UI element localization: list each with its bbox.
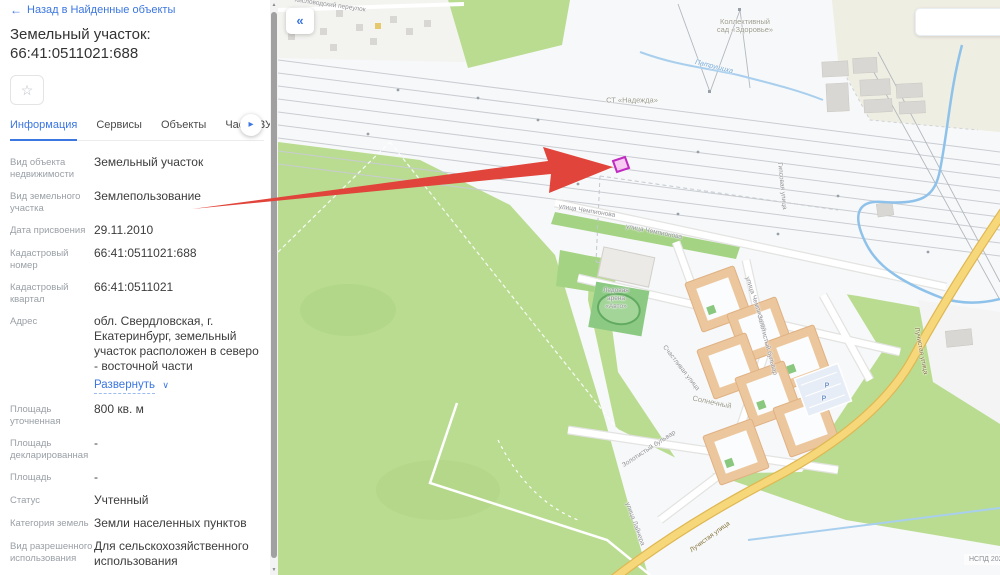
fields-list: Вид объекта недвижимости Земельный участ… [10,155,264,575]
field-row: Вид объекта недвижимости Земельный участ… [10,155,264,181]
field-value: Земли населенных пунктов [94,516,264,531]
map-canvas[interactable] [278,0,1000,575]
field-label: Статус [10,493,94,508]
field-value: Для сельскохозяйственного использования [94,539,264,569]
field-row: Площадь - [10,470,264,485]
field-row: Дата присвоения 29.11.2010 [10,223,264,238]
address-text: обл. Свердловская, г. Екатеринбург, земе… [94,314,259,373]
object-info-panel: ← Назад в Найденные объекты Земельный уч… [0,0,270,575]
field-row: Площадь уточненная 800 кв. м [10,402,264,428]
field-row-address: Адрес обл. Свердловская, г. Екатеринбург… [10,314,264,394]
field-value: - [94,436,264,462]
tab-bar: Информация Сервисы Объекты Части ЗУ Сост… [10,119,264,141]
scrollbar-up-icon[interactable]: ▲ [270,2,278,8]
collapse-panel-button[interactable]: « [286,8,314,34]
field-value: 800 кв. м [94,402,264,428]
field-row: Вид разрешенного использования Для сельс… [10,539,264,569]
scrollbar-thumb[interactable] [271,12,277,558]
field-row: Статус Учтенный [10,493,264,508]
field-row: Вид земельного участка Землепользование [10,189,264,215]
panel-scrollbar[interactable]: ▲ ▼ [270,0,278,575]
cadastral-map-app: ← Назад в Найденные объекты Земельный уч… [0,0,1000,575]
copyright-label: НСПД 202 [964,554,1000,565]
favorite-button[interactable]: ☆ [10,75,44,105]
field-label: Кадастровый квартал [10,280,94,306]
field-label: Площадь декларированная [10,436,94,462]
field-value: Учтенный [94,493,264,508]
field-label: Вид разрешенного использования [10,539,94,569]
back-label: Назад в Найденные объекты [27,4,175,16]
field-value: Земельный участок [94,155,264,181]
star-icon: ☆ [21,82,34,98]
field-value: 29.11.2010 [94,223,264,238]
field-label: Кадастровый номер [10,246,94,272]
field-row: Кадастровый квартал 66:41:0511021 [10,280,264,306]
field-row: Кадастровый номер 66:41:0511021:688 [10,246,264,272]
page-title: Земельный участок: 66:41:0511021:688 [10,25,264,63]
field-value: обл. Свердловская, г. Екатеринбург, земе… [94,314,264,394]
double-chevron-left-icon: « [296,13,303,28]
stadium [588,282,649,337]
tab-information[interactable]: Информация [10,119,77,131]
field-label: Адрес [10,314,94,394]
back-arrow-icon: ← [10,3,22,17]
field-label: Категория земель [10,516,94,531]
field-label: Площадь уточненная [10,402,94,428]
field-label: Вид земельного участка [10,189,94,215]
chevron-down-icon: ∨ [162,380,169,390]
field-row: Категория земель Земли населенных пункто… [10,516,264,531]
field-value: 66:41:0511021 [94,280,264,306]
field-label: Вид объекта недвижимости [10,155,94,181]
tab-services[interactable]: Сервисы [96,119,142,131]
back-link[interactable]: ← Назад в Найденные объекты [10,3,264,17]
tab-objects[interactable]: Объекты [161,119,206,131]
parcel-highlight[interactable] [613,157,629,172]
field-value: 66:41:0511021:688 [94,246,264,272]
field-label: Площадь [10,470,94,485]
field-row: Площадь декларированная - [10,436,264,462]
chevron-right-icon: ▸ [248,119,253,130]
field-label: Дата присвоения [10,223,94,238]
map-control-box[interactable] [915,8,1000,36]
map-viewport[interactable]: Кисловодский переулок Коллективный сад «… [278,0,1000,575]
expand-address-link[interactable]: Развернуть [94,378,155,394]
tabs-scroll-button[interactable]: ▸ [240,114,262,136]
field-value: - [94,470,264,485]
scrollbar-down-icon[interactable]: ▼ [270,567,278,573]
field-value: Землепользование [94,189,264,215]
